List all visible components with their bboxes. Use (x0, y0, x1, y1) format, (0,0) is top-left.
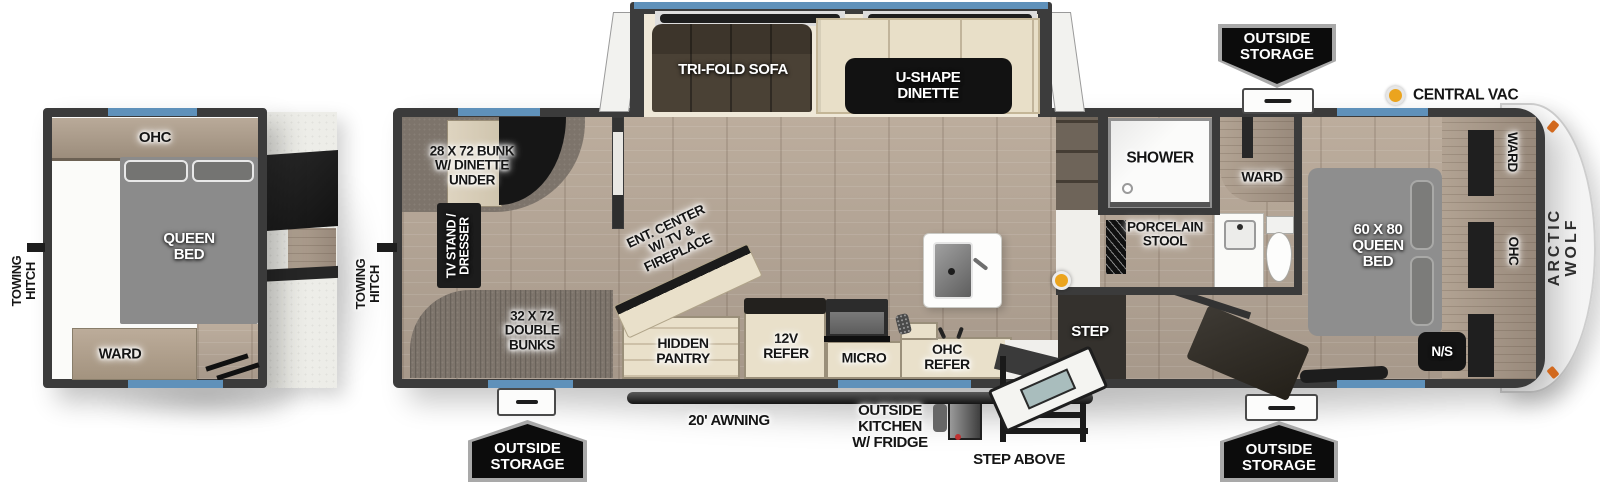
bedroom-queen-bed-label: 60 X 80 QUEEN BED (1352, 222, 1403, 270)
step-above-label: STEP ABOVE (973, 452, 1065, 468)
main-hitch-stub (377, 243, 397, 252)
rear-window-bottom (128, 380, 223, 388)
outside-storage-badge-bottom-right: OUTSIDE STORAGE (1220, 421, 1338, 482)
outside-storage-top-label: OUTSIDE STORAGE (1240, 31, 1314, 63)
slide-awning-window-strip (634, 2, 1048, 9)
shower-drain-icon (1122, 183, 1133, 194)
front-ward-label: WARD (1505, 132, 1519, 172)
window-bunkroom-top (458, 108, 540, 116)
wall-shower-bottom (1098, 208, 1220, 215)
hidden-pantry-label: HIDDEN PANTRY (656, 336, 710, 366)
outside-storage-right-label: OUTSIDE STORAGE (1242, 442, 1316, 474)
window-bedroom-top (1337, 108, 1428, 116)
wall-bath-bottom (1056, 287, 1302, 295)
bath-ward-label: WARD (1241, 170, 1282, 185)
central-vac-icon (1386, 86, 1405, 105)
rear-queen-bed-label: QUEEN BED (163, 231, 214, 263)
wardrobe-inset-2 (1468, 222, 1494, 288)
window-kitchen-bottom (838, 380, 971, 388)
bath-ward-slot (1242, 117, 1253, 158)
bed-pillow-top (1410, 180, 1434, 250)
fridge-latch-icon (955, 434, 961, 440)
storage-hatch-bottom-left (497, 388, 556, 416)
tv-stand-label: TV STAND / DRESSER (446, 214, 473, 279)
outside-kitchen-fridge (948, 400, 982, 440)
double-bunks-label: 32 X 72 DOUBLE BUNKS (505, 309, 560, 352)
bunkroom-wall-pillar (612, 117, 624, 229)
rear-ward-label: WARD (99, 347, 142, 363)
wall-shower-left (1100, 117, 1108, 213)
refer-12v-label: 12V REFER (763, 331, 808, 361)
outside-storage-left-label: OUTSIDE STORAGE (491, 441, 565, 473)
stove-panel (830, 312, 884, 334)
main-towing-hitch-label: TOWING HITCH (354, 259, 382, 310)
central-vac-label: CENTRAL VAC (1413, 88, 1518, 105)
step-label: STEP (1071, 324, 1109, 340)
bed-pillow-bottom (1410, 256, 1434, 326)
rear-bed-pillow-right (192, 160, 254, 182)
rear-unit-side-shelf (288, 228, 336, 270)
outside-kitchen-tank (933, 404, 947, 432)
brand-label: ARCTIC WOLF (1546, 208, 1580, 286)
vanity-faucet-icon (1237, 224, 1243, 230)
rear-hitch-stub (27, 243, 45, 252)
porcelain-stool-label: PORCELAIN STOOL (1127, 221, 1203, 250)
wardrobe-inset-3 (1468, 314, 1494, 377)
night-shade-label: N/S (1431, 345, 1452, 359)
storage-hatch-top (1242, 88, 1314, 114)
bunk-label: 28 X 72 BUNK W/ DINETTE UNDER (430, 144, 515, 187)
tri-fold-sofa-label: TRI-FOLD SOFA (678, 62, 788, 78)
wall-shower-right (1212, 117, 1220, 215)
bath-ward-cabinet (1220, 117, 1298, 202)
bath-drawers-cabinet (1056, 117, 1100, 210)
front-ohc-label: OHC (1506, 237, 1520, 266)
shower-label: SHOWER (1126, 151, 1193, 168)
rear-bed-pillow-left (124, 160, 188, 182)
shower-door-track (1110, 202, 1210, 207)
wall-bath-right (1294, 117, 1302, 295)
central-vac-location-icon (1052, 271, 1071, 290)
rear-window-top (108, 108, 197, 116)
window-bunkroom-bottom (488, 380, 573, 388)
island-sink-drain-icon (948, 268, 955, 275)
awning-label: 20' AWNING (688, 413, 770, 429)
floorplan-canvas: TOWING HITCH OHC QUEEN BED WARD TRI-FOLD… (0, 0, 1600, 483)
slide-window-left (660, 14, 840, 23)
ohc-refer-label: OHC REFER (924, 342, 969, 372)
refer-12v-lid (744, 298, 826, 314)
micro-label: MICRO (842, 351, 887, 366)
outside-storage-badge-top: OUTSIDE STORAGE (1218, 24, 1336, 88)
bath-towel-panel (1106, 220, 1126, 274)
outside-kitchen-label: OUTSIDE KITCHEN W/ FRIDGE (852, 403, 928, 451)
steps-tread-3 (1004, 428, 1088, 434)
rear-towing-hitch-label: TOWING HITCH (10, 256, 38, 307)
rear-ohc-label: OHC (139, 130, 171, 146)
stove-base (824, 336, 890, 342)
wardrobe-inset-1 (1468, 130, 1494, 196)
window-bedroom-bottom (1337, 380, 1425, 388)
outside-storage-badge-bottom-left: OUTSIDE STORAGE (468, 420, 587, 482)
u-shape-dinette-label: U-SHAPE DINETTE (896, 70, 961, 102)
